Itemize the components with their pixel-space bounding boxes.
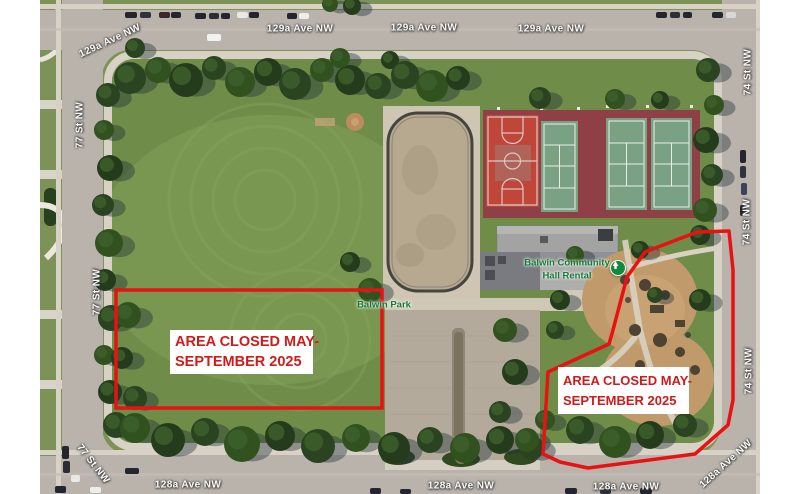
park-tree-icon[interactable] xyxy=(610,260,626,276)
basketball-court xyxy=(486,115,539,207)
map-artwork xyxy=(40,0,760,494)
satellite-map[interactable]: AREA CLOSED MAY- SEPTEMBER 2025 AREA CLO… xyxy=(40,0,760,494)
closure-line2: SEPTEMBER 2025 xyxy=(563,391,684,411)
closure-line2: SEPTEMBER 2025 xyxy=(175,352,308,372)
screenshot-canvas: AREA CLOSED MAY- SEPTEMBER 2025 AREA CLO… xyxy=(0,0,800,494)
closure-line1: AREA CLOSED MAY- xyxy=(175,332,308,352)
closure-line1: AREA CLOSED MAY- xyxy=(563,371,684,391)
tennis-courts xyxy=(541,118,692,212)
closure-label-east: AREA CLOSED MAY- SEPTEMBER 2025 xyxy=(558,367,689,414)
closure-label-west: AREA CLOSED MAY- SEPTEMBER 2025 xyxy=(170,330,313,374)
hockey-rink xyxy=(383,106,480,302)
sports-courts xyxy=(483,105,700,218)
